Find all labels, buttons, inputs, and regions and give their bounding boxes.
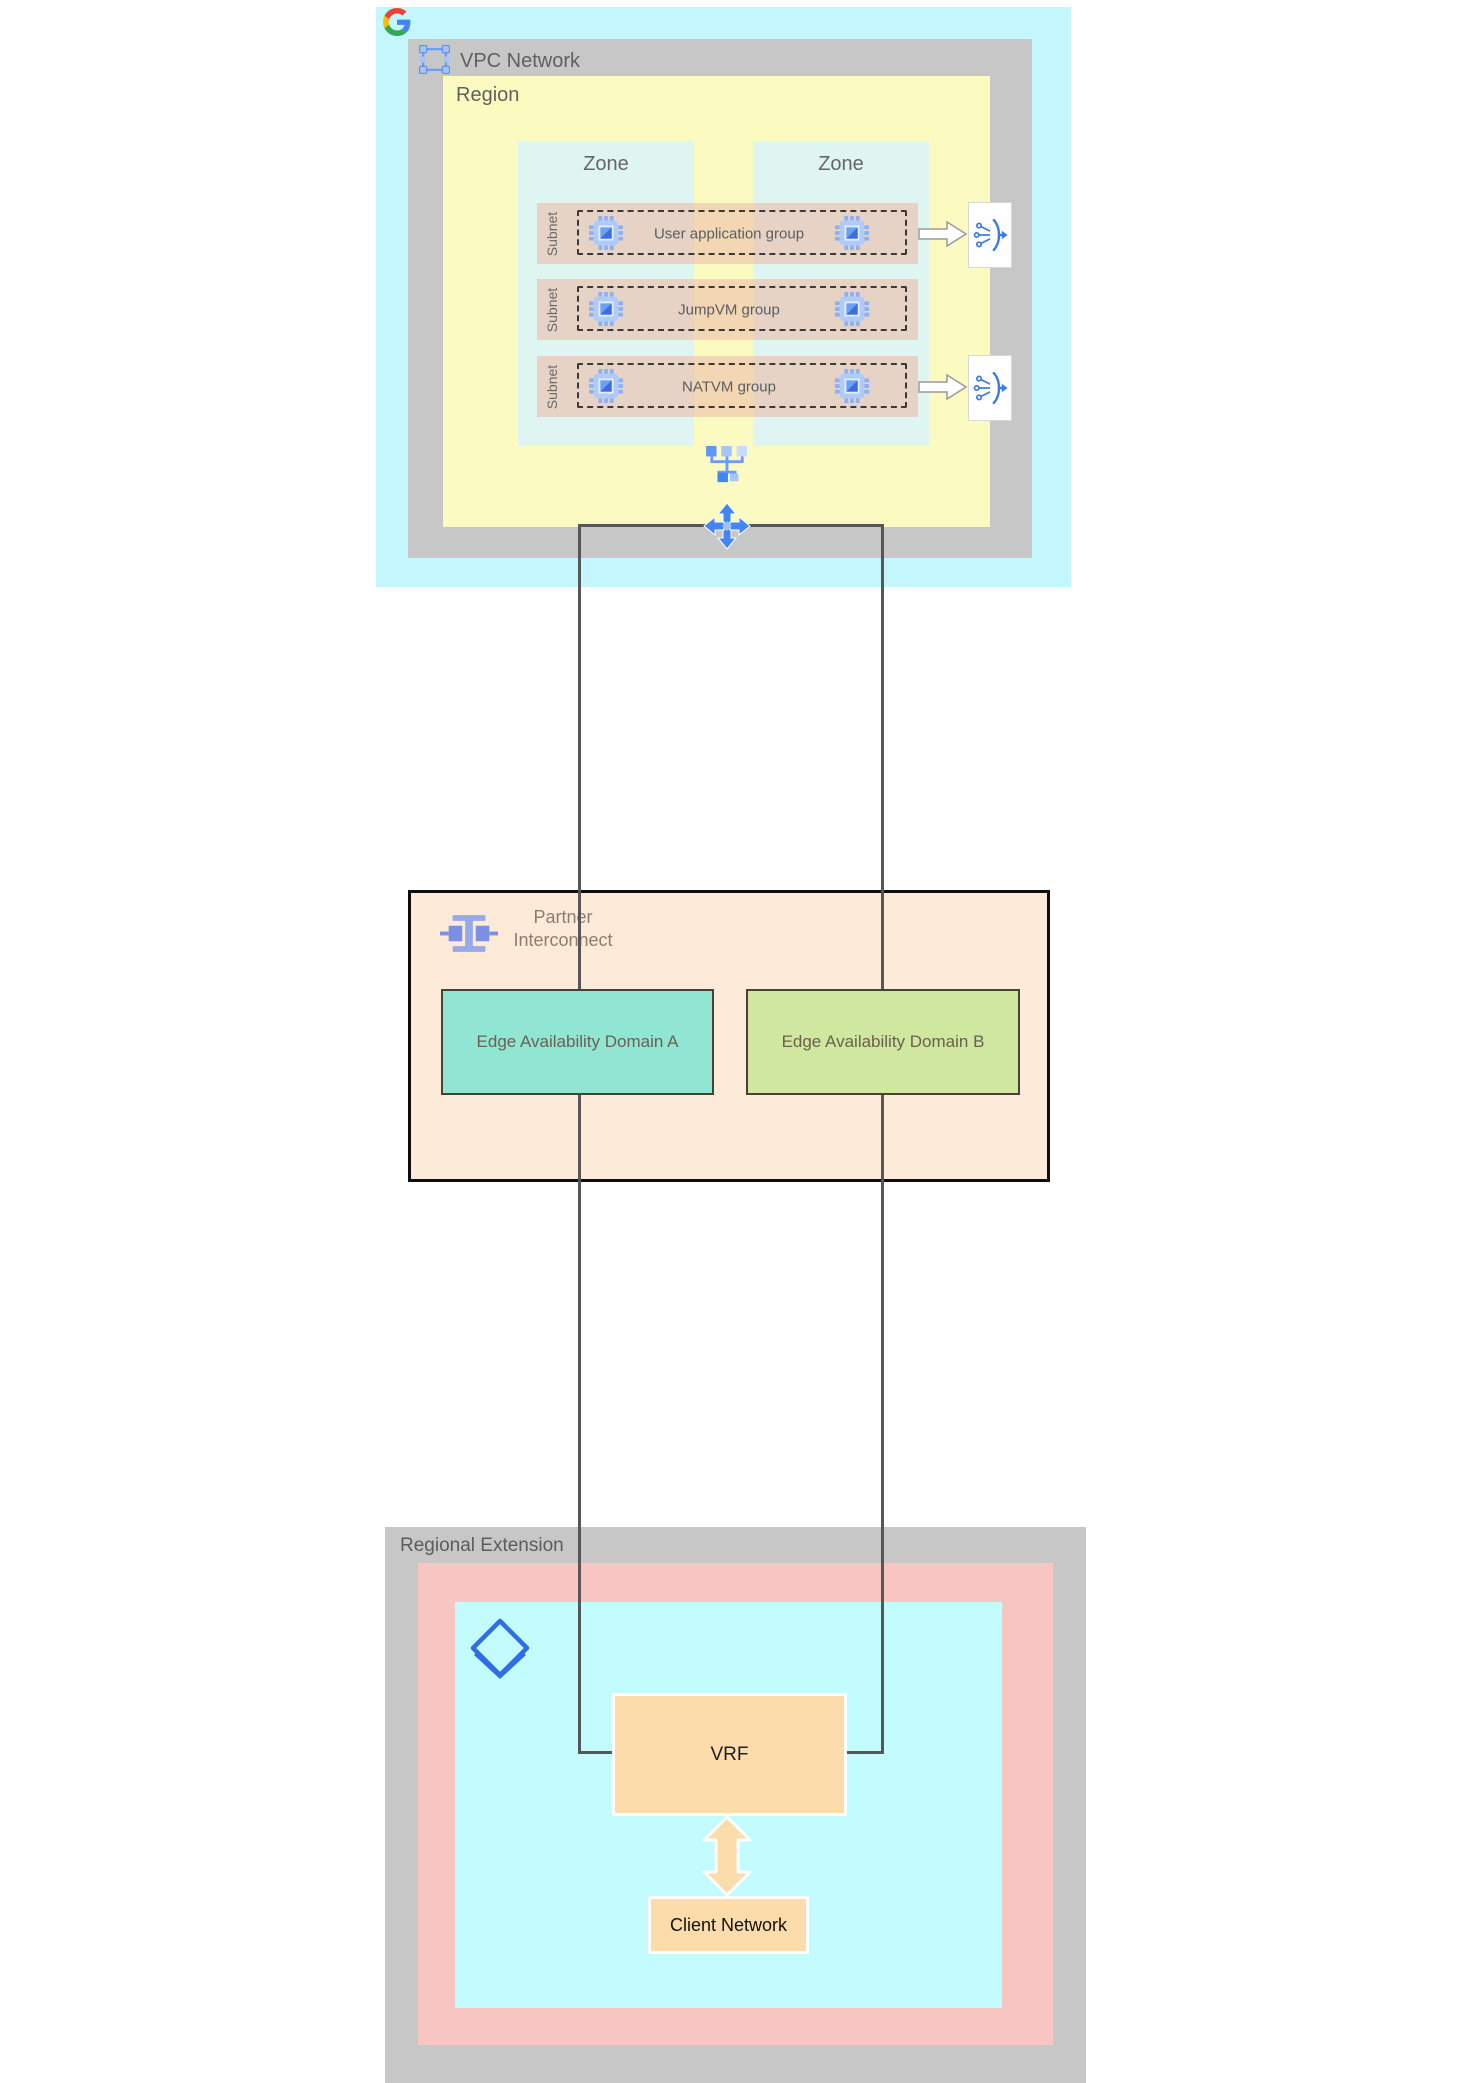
architecture-diagram: VPC Network Region Zone Zone Subnet User…	[0, 0, 1459, 2083]
vm-instance-icon	[835, 369, 869, 403]
load-balancer-box	[968, 202, 1012, 268]
vm-instance-icon	[589, 292, 623, 326]
vm-instance-icon	[835, 216, 869, 250]
subnet-row-jumpvm: Subnet JumpVM group	[537, 279, 918, 340]
vm-instance-icon	[835, 292, 869, 326]
vm-instance-icon	[589, 216, 623, 250]
vrf-box: VRF	[612, 1693, 847, 1816]
edge-domain-b-label: Edge Availability Domain B	[782, 1032, 985, 1052]
connector-right-stub	[843, 1751, 884, 1754]
vpc-icon	[419, 45, 450, 74]
vrf-label: VRF	[711, 1744, 749, 1766]
arrow-to-load-balancer	[918, 373, 968, 401]
four-way-arrows-icon	[703, 502, 751, 550]
bidirectional-arrow	[697, 1814, 757, 1898]
connector-left	[578, 524, 581, 1754]
cloud-router-icon	[468, 1618, 532, 1686]
instance-group-label: JumpVM group	[623, 301, 835, 318]
instance-group-label: NATVM group	[623, 378, 835, 395]
partner-interconnect-title: Partner Interconnect	[493, 906, 633, 953]
client-network-label: Client Network	[670, 1915, 787, 1936]
network-hub-icon	[705, 445, 749, 485]
arrow-to-load-balancer	[918, 220, 968, 248]
regional-extension-title: Regional Extension	[400, 1535, 564, 1557]
connector-right	[881, 524, 884, 1754]
subnet-row-user-application: Subnet User application group	[537, 203, 918, 264]
connector-left-stub	[578, 1751, 616, 1754]
partner-interconnect-title-line1: Partner	[533, 907, 592, 927]
interconnect-icon	[440, 912, 498, 955]
region-title: Region	[456, 84, 519, 107]
client-network-box: Client Network	[648, 1896, 809, 1954]
subnet-label: Subnet	[544, 287, 560, 331]
zone-title: Zone	[518, 141, 694, 176]
google-logo-icon	[383, 8, 411, 36]
edge-availability-domain-b: Edge Availability Domain B	[746, 989, 1020, 1095]
edge-availability-domain-a: Edge Availability Domain A	[441, 989, 714, 1095]
vpc-network-title: VPC Network	[460, 50, 580, 73]
zone-title: Zone	[753, 141, 929, 176]
partner-interconnect-title-line2: Interconnect	[513, 930, 612, 950]
load-balancer-icon	[972, 208, 1008, 262]
load-balancer-box	[968, 355, 1012, 421]
load-balancer-icon	[972, 361, 1008, 415]
subnet-row-natvm: Subnet NATVM group	[537, 356, 918, 417]
subnet-label: Subnet	[544, 364, 560, 408]
vm-instance-icon	[589, 369, 623, 403]
subnet-label: Subnet	[544, 211, 560, 255]
edge-domain-a-label: Edge Availability Domain A	[477, 1032, 679, 1052]
instance-group-label: User application group	[623, 225, 835, 242]
